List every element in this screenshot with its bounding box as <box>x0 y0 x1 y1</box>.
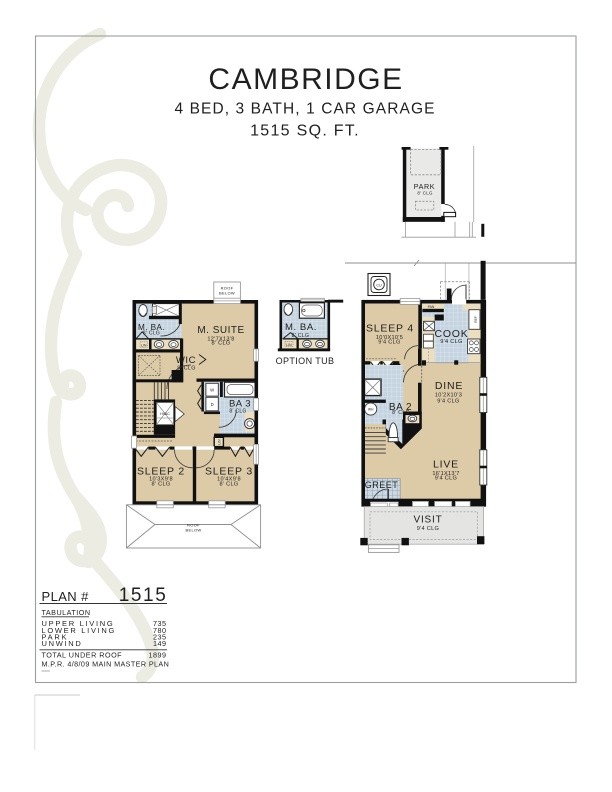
svg-text:9'4 CLG: 9'4 CLG <box>435 476 457 482</box>
svg-text:1515: 1515 <box>119 585 168 606</box>
svg-text:VISIT: VISIT <box>413 515 442 526</box>
svg-text:8' CLG: 8' CLG <box>151 481 170 487</box>
svg-text:8' CLG: 8' CLG <box>219 481 238 487</box>
svg-text:HVAC: HVAC <box>160 412 170 416</box>
svg-text:TOTAL UNDER ROOF: TOTAL UNDER ROOF <box>42 651 123 660</box>
svg-text:1899: 1899 <box>149 651 167 660</box>
svg-text:CAMBRIDGE: CAMBRIDGE <box>208 63 403 96</box>
svg-text:M. SUITE: M. SUITE <box>197 325 244 336</box>
svg-text:OPTION TUB: OPTION TUB <box>276 356 335 366</box>
svg-text:10'2X10'3: 10'2X10'3 <box>435 392 462 398</box>
svg-text:CU: CU <box>376 283 382 287</box>
svg-text:8' CLG: 8' CLG <box>211 341 230 347</box>
svg-text:8' CLG: 8' CLG <box>417 190 433 195</box>
svg-text:8' CLG: 8' CLG <box>229 408 246 414</box>
svg-text:GREET: GREET <box>365 480 399 490</box>
svg-text:149: 149 <box>153 639 167 648</box>
svg-text:DINE: DINE <box>435 380 463 392</box>
svg-text:9'4 CLG: 9'4 CLG <box>378 340 400 346</box>
svg-text:TABULATION: TABULATION <box>42 608 91 617</box>
svg-text:9'4 CLG: 9'4 CLG <box>437 399 459 405</box>
svg-text:LIVE: LIVE <box>433 459 459 471</box>
svg-text:9'4 CLG: 9'4 CLG <box>417 526 439 532</box>
svg-text:M.P.R. 4/8/09 MAIN MASTER PLAN: M.P.R. 4/8/09 MAIN MASTER PLAN <box>42 660 170 669</box>
svg-text:M. BA.: M. BA. <box>285 322 317 333</box>
svg-text:LIN: LIN <box>286 343 292 347</box>
svg-text:4 BED, 3 BATH, 1 CAR GARAGE: 4 BED, 3 BATH, 1 CAR GARAGE <box>174 101 435 118</box>
svg-text:BELOW: BELOW <box>219 291 235 296</box>
svg-text:UNWIND: UNWIND <box>42 639 83 648</box>
svg-text:LIN: LIN <box>141 344 147 348</box>
svg-text:BELOW: BELOW <box>186 528 202 533</box>
svg-text:8' CLG: 8' CLG <box>392 410 410 416</box>
svg-text:SLEEP 4: SLEEP 4 <box>366 323 414 335</box>
svg-text:1515 SQ. FT.: 1515 SQ. FT. <box>250 123 360 140</box>
svg-text:W: W <box>210 388 214 393</box>
svg-text:WH: WH <box>368 407 374 411</box>
svg-text:9'4 CLG: 9'4 CLG <box>440 339 462 345</box>
svg-text:PLAN #: PLAN # <box>42 589 90 604</box>
svg-text:REF: REF <box>474 316 478 322</box>
svg-text:LIN: LIN <box>218 439 222 445</box>
svg-text:PAN: PAN <box>428 305 435 309</box>
svg-text:D: D <box>211 402 214 407</box>
